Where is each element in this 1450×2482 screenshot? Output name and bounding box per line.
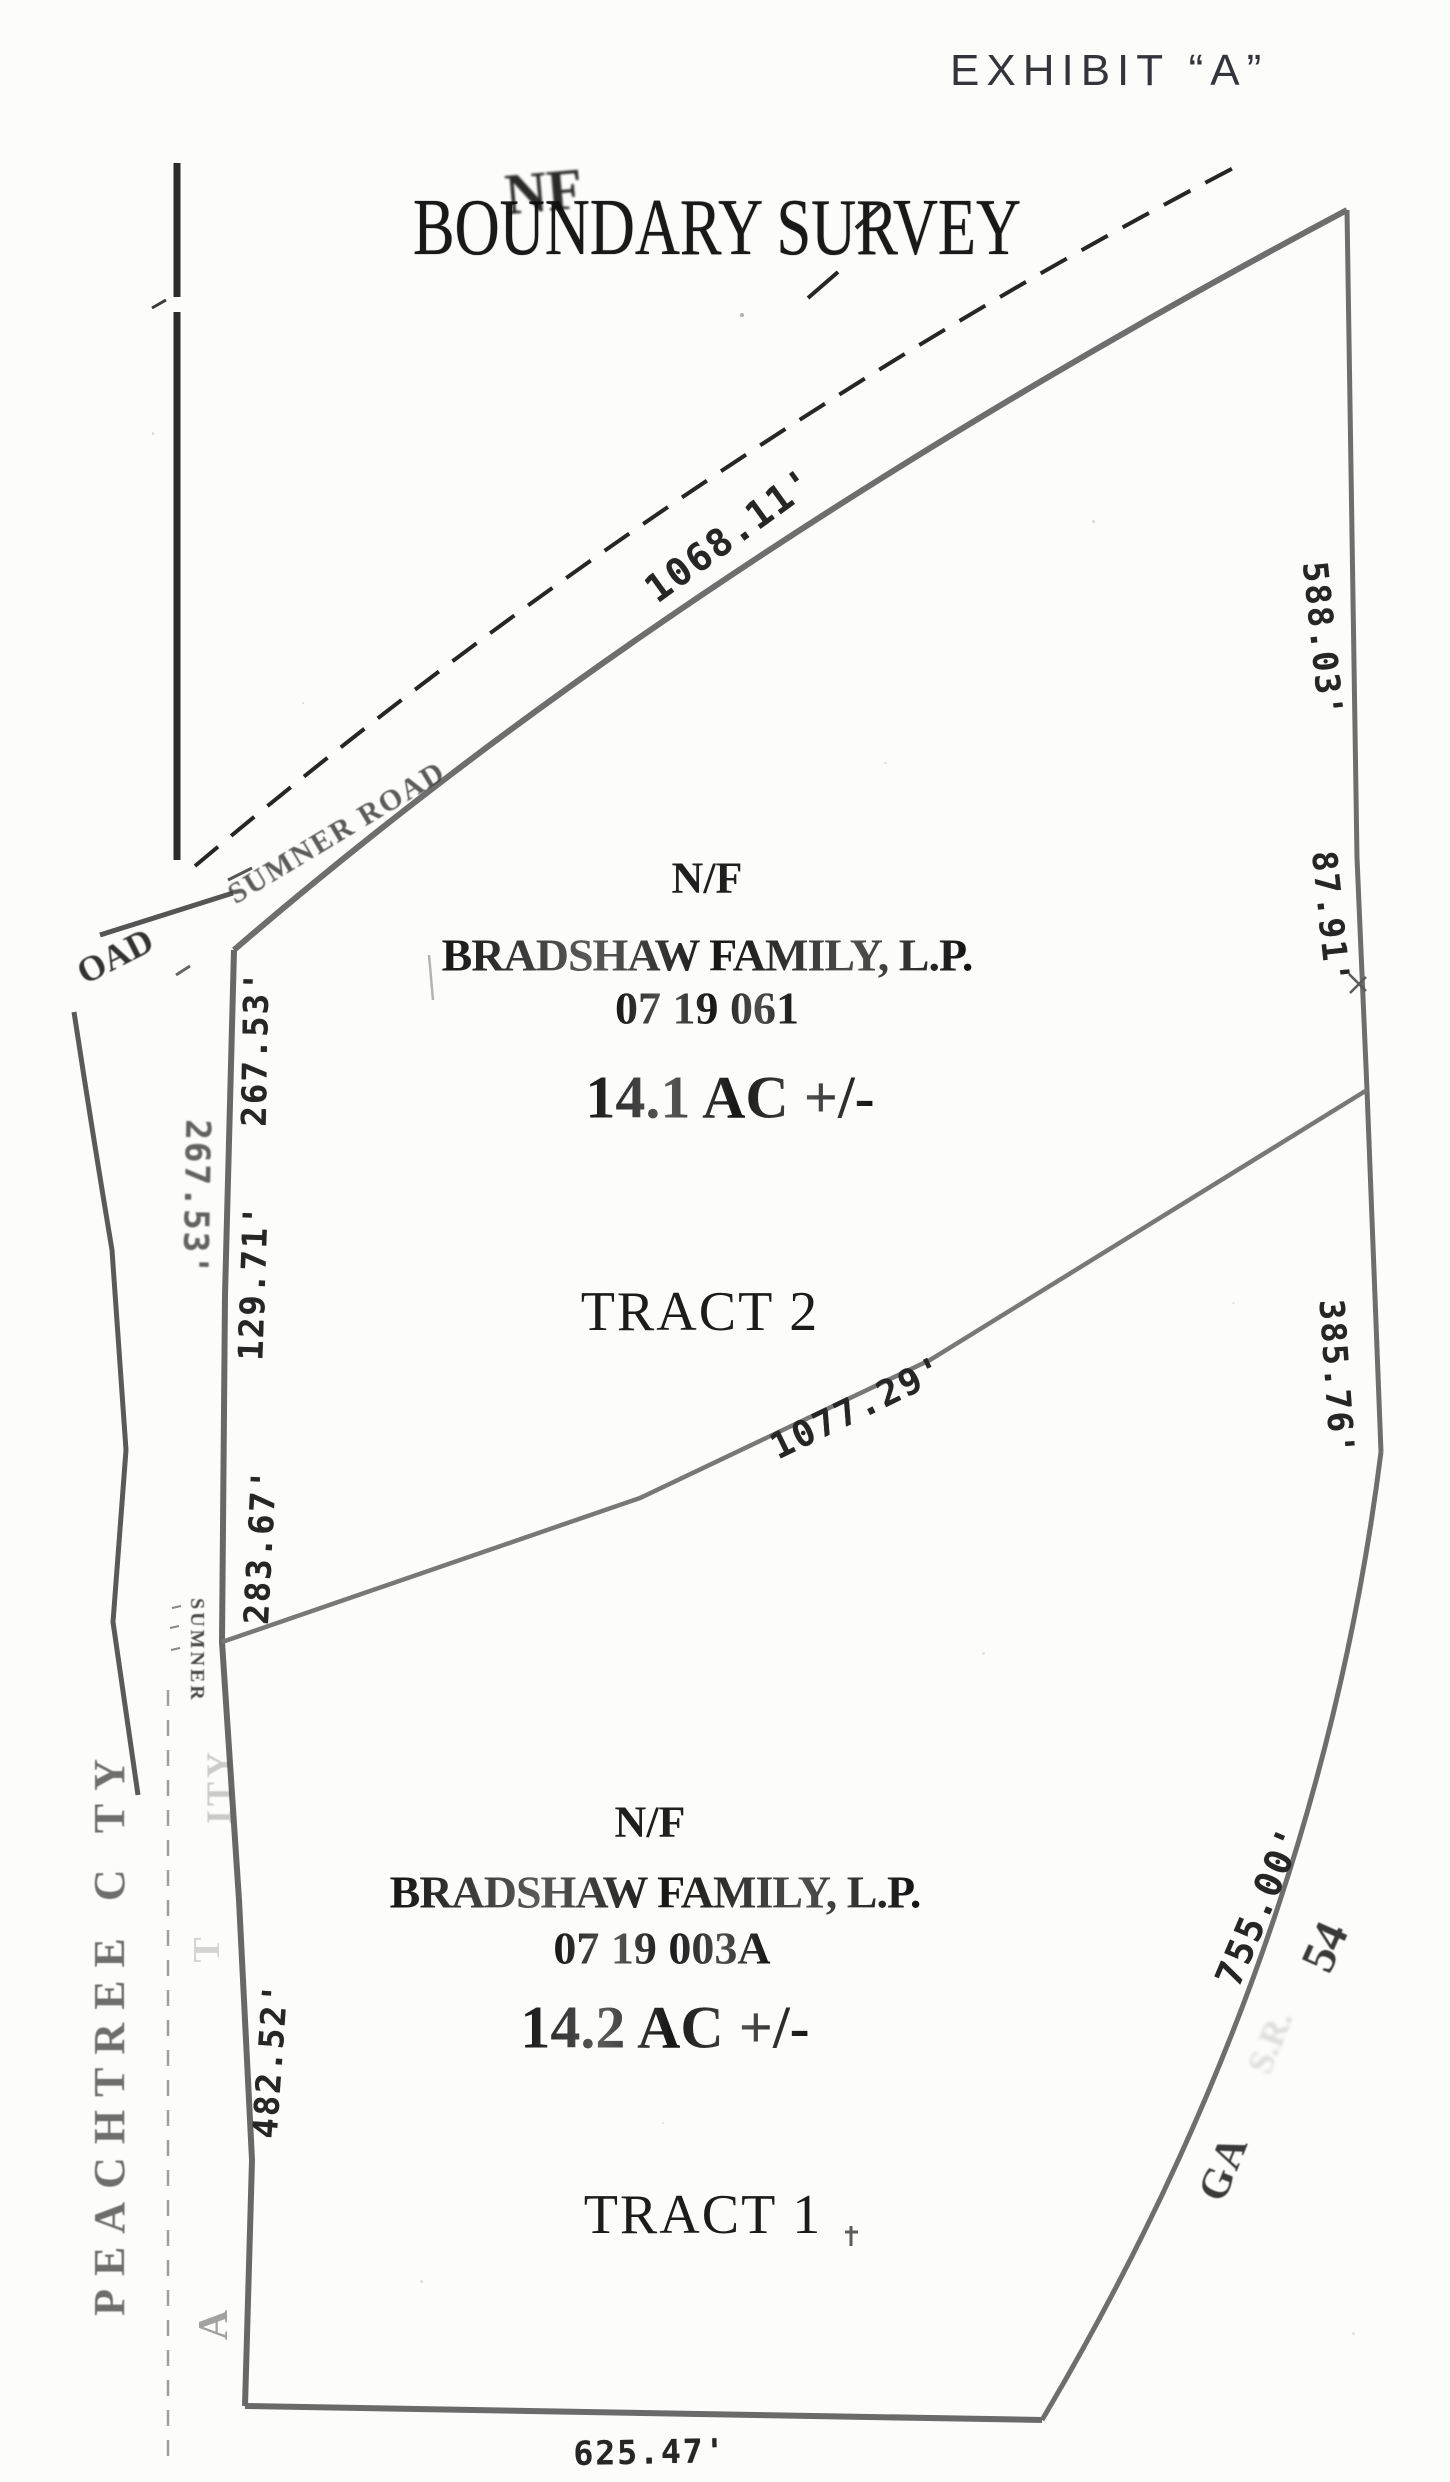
tract1-area-label: 14.2 AC +/- <box>520 1994 809 2063</box>
stray-mark <box>845 2226 858 2246</box>
scanned-boundary-survey-page: EXHIBIT “A” BOUNDARY SURVEY NF SUMNER RO… <box>0 0 1450 2482</box>
scan-speck <box>662 2122 664 2124</box>
ghost-letter-t: T <box>185 1937 229 1962</box>
ghost-letter-a: A <box>190 2310 238 2340</box>
west-seg1-road-measurement: 267.53' <box>175 1119 218 1277</box>
exhibit-label: EXHIBIT “A” <box>950 46 1268 96</box>
west-seg1-measurement: 267.53' <box>235 969 278 1127</box>
south-boundary-line <box>245 2406 1042 2420</box>
peachtree-city-label: PEACHTREE C TY <box>84 1746 135 2316</box>
tract2-name: TRACT 2 <box>581 1280 820 1344</box>
scan-speck <box>1232 1302 1235 1304</box>
west-boundary-line <box>222 950 252 2406</box>
page-title: BOUNDARY SURVEY <box>413 183 1021 274</box>
survey-linework <box>0 0 1450 2482</box>
tract1-name: TRACT 1 <box>584 2183 823 2247</box>
scan-speck <box>302 702 304 704</box>
south-boundary-measurement: 625.47' <box>573 2431 727 2473</box>
tract1-owner-label: BRADSHAW FAMILY, L.P. <box>390 1866 921 1919</box>
overstamp-smudge: NF <box>502 155 585 228</box>
tiny-stamp-dash-3 <box>171 1648 180 1650</box>
west-seg3-measurement: 283.67' <box>237 1466 285 1625</box>
tract1-nf-label: N/F <box>615 1797 686 1848</box>
sumner-west-edge <box>74 1012 138 1795</box>
sumner-vertical-label: SUMNER <box>185 1598 208 1703</box>
tract2-area-label: 14.1 AC +/- <box>585 1064 874 1133</box>
scan-speck <box>152 432 154 435</box>
tiny-stamp-dash-2 <box>170 1626 179 1628</box>
east-boundary-line <box>1347 210 1381 1452</box>
tract2-owner-label: BRADSHAW FAMILY, L.P. <box>442 929 973 982</box>
faint-tick-b <box>429 955 433 1000</box>
scan-speck <box>740 313 744 317</box>
tract2-nf-label: N/F <box>672 853 743 904</box>
stray-dash-1 <box>808 272 838 298</box>
west-seg2-measurement: 129.71' <box>231 1203 276 1362</box>
tract-division-line <box>222 1090 1367 1642</box>
ghost-city-suffix: ITY <box>198 1748 240 1824</box>
scan-speck <box>982 1652 985 1655</box>
scan-speck <box>884 762 887 764</box>
small-dash-a <box>176 966 190 975</box>
north-boundary-line <box>234 210 1347 950</box>
left-line-fleck <box>152 300 166 308</box>
scan-speck <box>1092 520 1095 523</box>
scan-speck <box>1352 2332 1355 2335</box>
tract1-parcel-id: 07 19 003A <box>553 1922 770 1975</box>
scan-speck <box>420 2280 423 2283</box>
tract2-parcel-id: 07 19 061 <box>615 982 799 1035</box>
tiny-stamp-dash-1 <box>172 1606 181 1608</box>
